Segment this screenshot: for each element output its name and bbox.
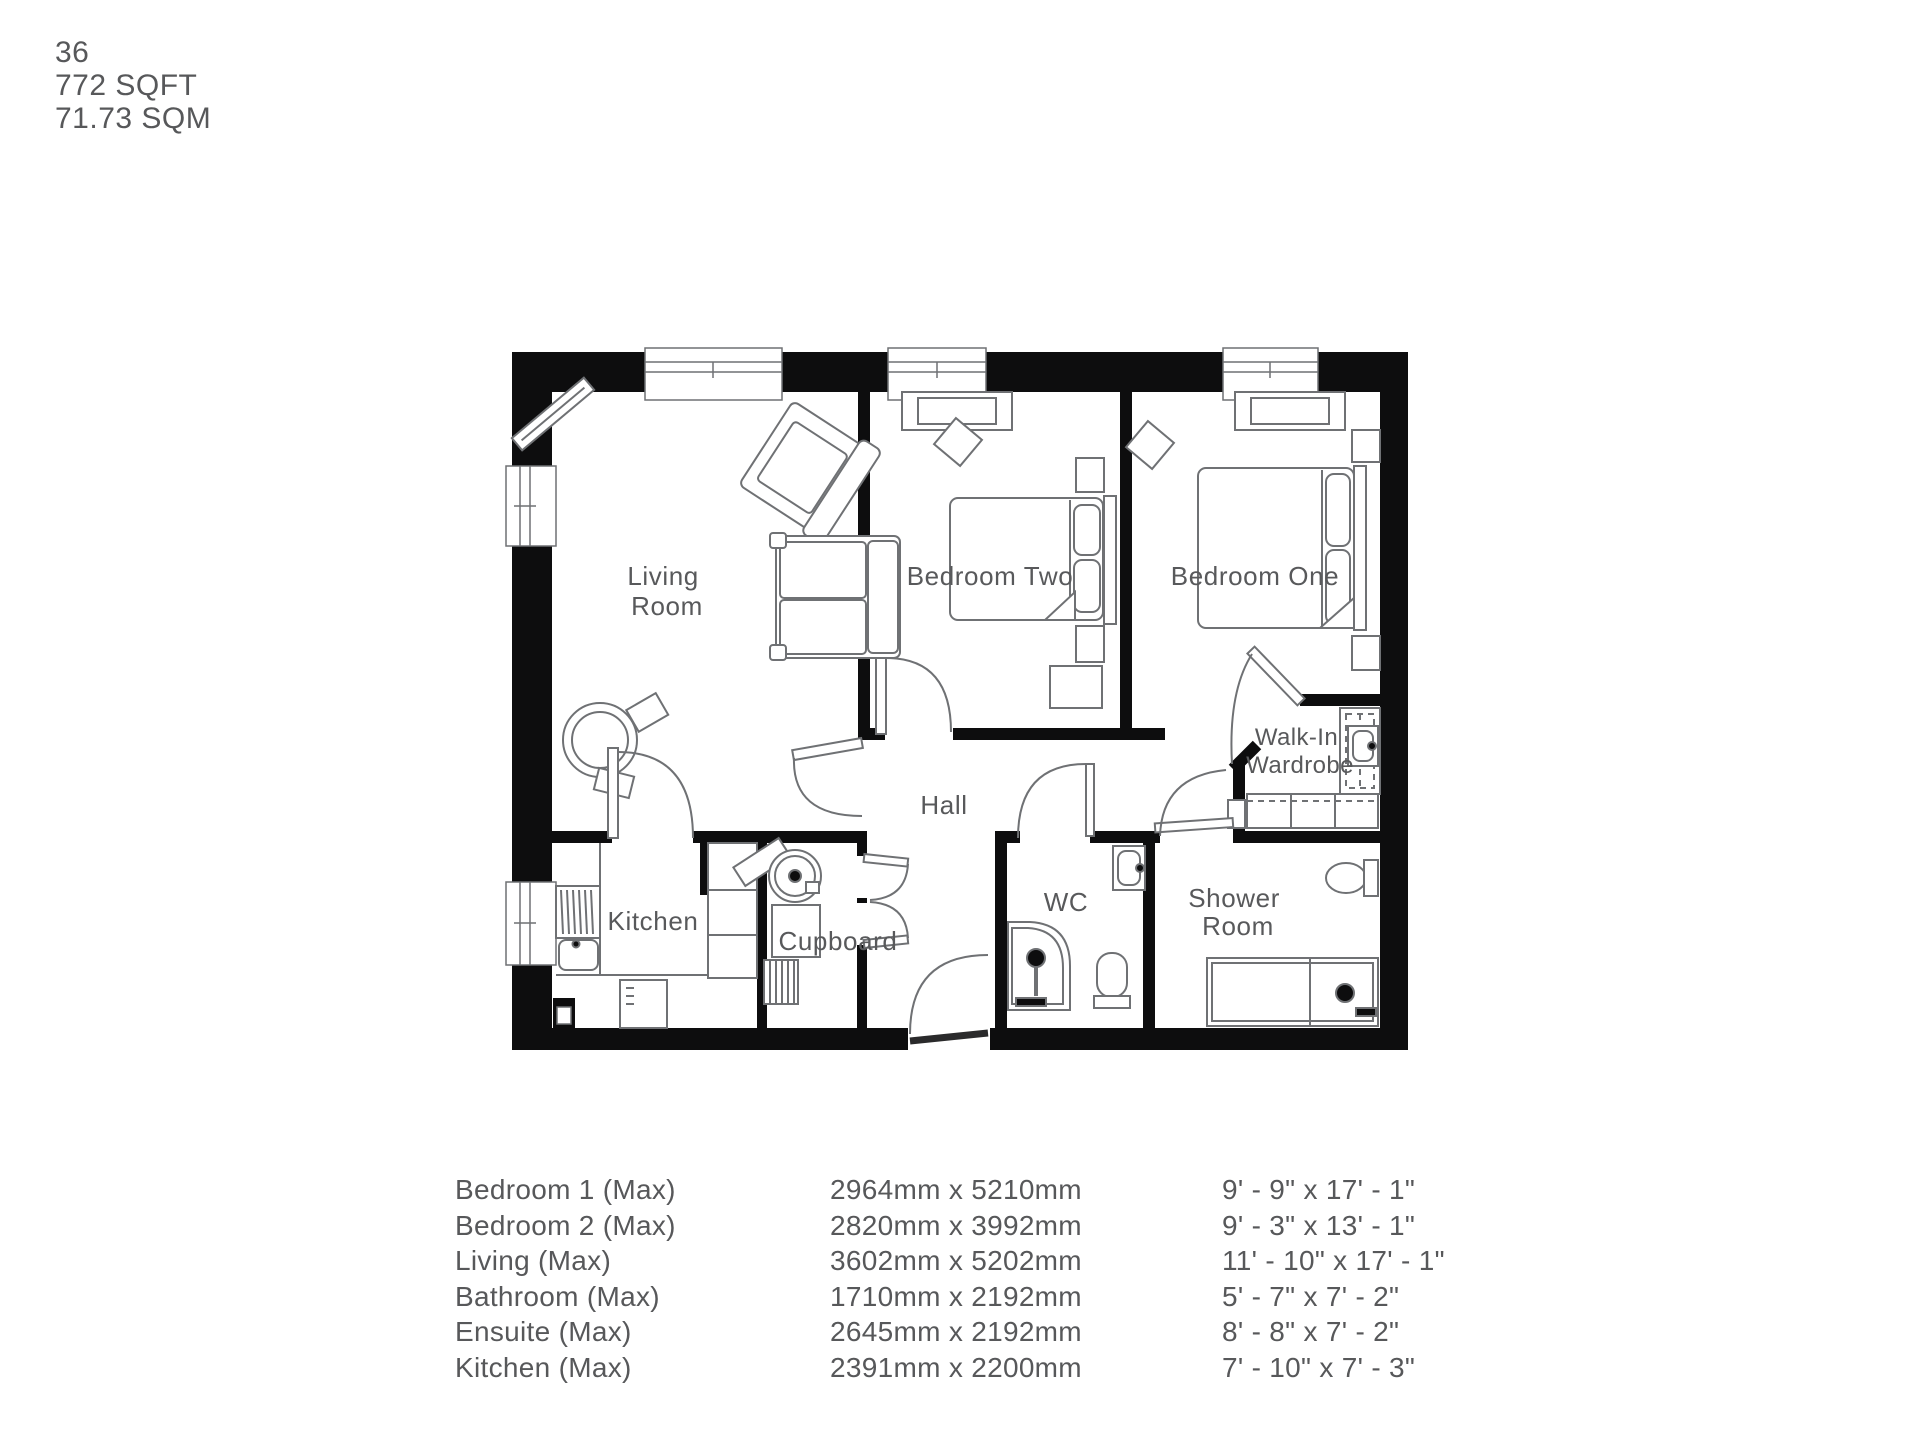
bedroom-two-bedside-bottom bbox=[1076, 626, 1104, 662]
wc-door bbox=[1018, 764, 1094, 838]
shower-room-door bbox=[1155, 770, 1233, 836]
bedroom-one-stool bbox=[1126, 421, 1174, 469]
room-metric: 1710mm x 2192mm bbox=[830, 1279, 1222, 1315]
room-imperial: 5' - 7" x 7' - 2" bbox=[1222, 1279, 1445, 1315]
shower-room-label: Shower Room bbox=[1188, 883, 1288, 941]
dimensions-table: Bedroom 1 (Max) 2964mm x 5210mm 9' - 9" … bbox=[455, 1172, 1445, 1385]
cupboard-radiator bbox=[764, 960, 798, 1004]
room-metric: 3602mm x 5202mm bbox=[830, 1243, 1222, 1279]
bedroom-two-drawers bbox=[1050, 666, 1102, 708]
shower-room-toilet bbox=[1326, 860, 1378, 896]
kitchen-side-window bbox=[506, 882, 556, 965]
windows bbox=[506, 348, 1318, 965]
floorplan-page: { "header": { "plot": "36", "sqft": "772… bbox=[0, 0, 1920, 1440]
room-imperial: 8' - 8" x 7' - 2" bbox=[1222, 1314, 1445, 1350]
wc-corner-shower bbox=[1008, 922, 1070, 1010]
room-name: Bedroom 2 (Max) bbox=[455, 1208, 830, 1244]
shower-tray bbox=[1207, 958, 1378, 1026]
kitchen-sink bbox=[556, 886, 600, 970]
room-name: Kitchen (Max) bbox=[455, 1350, 830, 1386]
walk-in-wardrobe-label: Walk-In Wardrobe bbox=[1246, 724, 1354, 779]
room-metric: 2645mm x 2192mm bbox=[830, 1314, 1222, 1350]
bedroom-two-door bbox=[876, 658, 951, 734]
table-row: Living (Max) 3602mm x 5202mm 11' - 10" x… bbox=[455, 1243, 1445, 1279]
wc-toilet bbox=[1094, 953, 1130, 1008]
room-imperial: 9' - 3" x 13' - 1" bbox=[1222, 1208, 1445, 1244]
room-name: Bathroom (Max) bbox=[455, 1279, 830, 1315]
bedroom-two-bed bbox=[950, 496, 1116, 624]
entrance-door bbox=[910, 955, 988, 1041]
kitchen-duct-notch bbox=[557, 1007, 571, 1024]
room-metric: 2820mm x 3992mm bbox=[830, 1208, 1222, 1244]
living-side-window bbox=[506, 466, 556, 546]
bedroom-one-label: Bedroom One bbox=[1171, 561, 1339, 591]
table-row: Bedroom 2 (Max) 2820mm x 3992mm 9' - 3" … bbox=[455, 1208, 1445, 1244]
table-row: Ensuite (Max) 2645mm x 2192mm 8' - 8" x … bbox=[455, 1314, 1445, 1350]
bedroom-two-label: Bedroom Two bbox=[907, 561, 1074, 591]
bedroom-two-bedside-top bbox=[1076, 458, 1104, 492]
living-room-label: Living Room bbox=[627, 561, 706, 621]
hall-label: Hall bbox=[920, 790, 967, 820]
room-metric: 2964mm x 5210mm bbox=[830, 1172, 1222, 1208]
wc-label: WC bbox=[1044, 887, 1089, 917]
cupboard-label: Cupboard bbox=[779, 926, 898, 956]
room-name: Living (Max) bbox=[455, 1243, 830, 1279]
table-row: Bathroom (Max) 1710mm x 2192mm 5' - 7" x… bbox=[455, 1279, 1445, 1315]
sofa bbox=[770, 533, 900, 660]
room-imperial: 9' - 9" x 17' - 1" bbox=[1222, 1172, 1445, 1208]
room-name: Ensuite (Max) bbox=[455, 1314, 830, 1350]
room-imperial: 7' - 10" x 7' - 3" bbox=[1222, 1350, 1445, 1386]
table-row: Kitchen (Max) 2391mm x 2200mm 7' - 10" x… bbox=[455, 1350, 1445, 1386]
room-name: Bedroom 1 (Max) bbox=[455, 1172, 830, 1208]
room-imperial: 11' - 10" x 17' - 1" bbox=[1222, 1243, 1445, 1279]
bedroom-one-bedside-top bbox=[1352, 430, 1380, 462]
bedroom-one-dressing-table bbox=[1235, 392, 1345, 430]
wc-basin bbox=[1113, 846, 1145, 890]
bedroom-one-bedside-bottom bbox=[1352, 636, 1380, 670]
living-top-window bbox=[645, 348, 782, 400]
room-metric: 2391mm x 2200mm bbox=[830, 1350, 1222, 1386]
table-row: Bedroom 1 (Max) 2964mm x 5210mm 9' - 9" … bbox=[455, 1172, 1445, 1208]
living-room-door bbox=[792, 738, 863, 816]
kitchen-label: Kitchen bbox=[608, 906, 699, 936]
bedroom-one-bed bbox=[1198, 466, 1366, 630]
